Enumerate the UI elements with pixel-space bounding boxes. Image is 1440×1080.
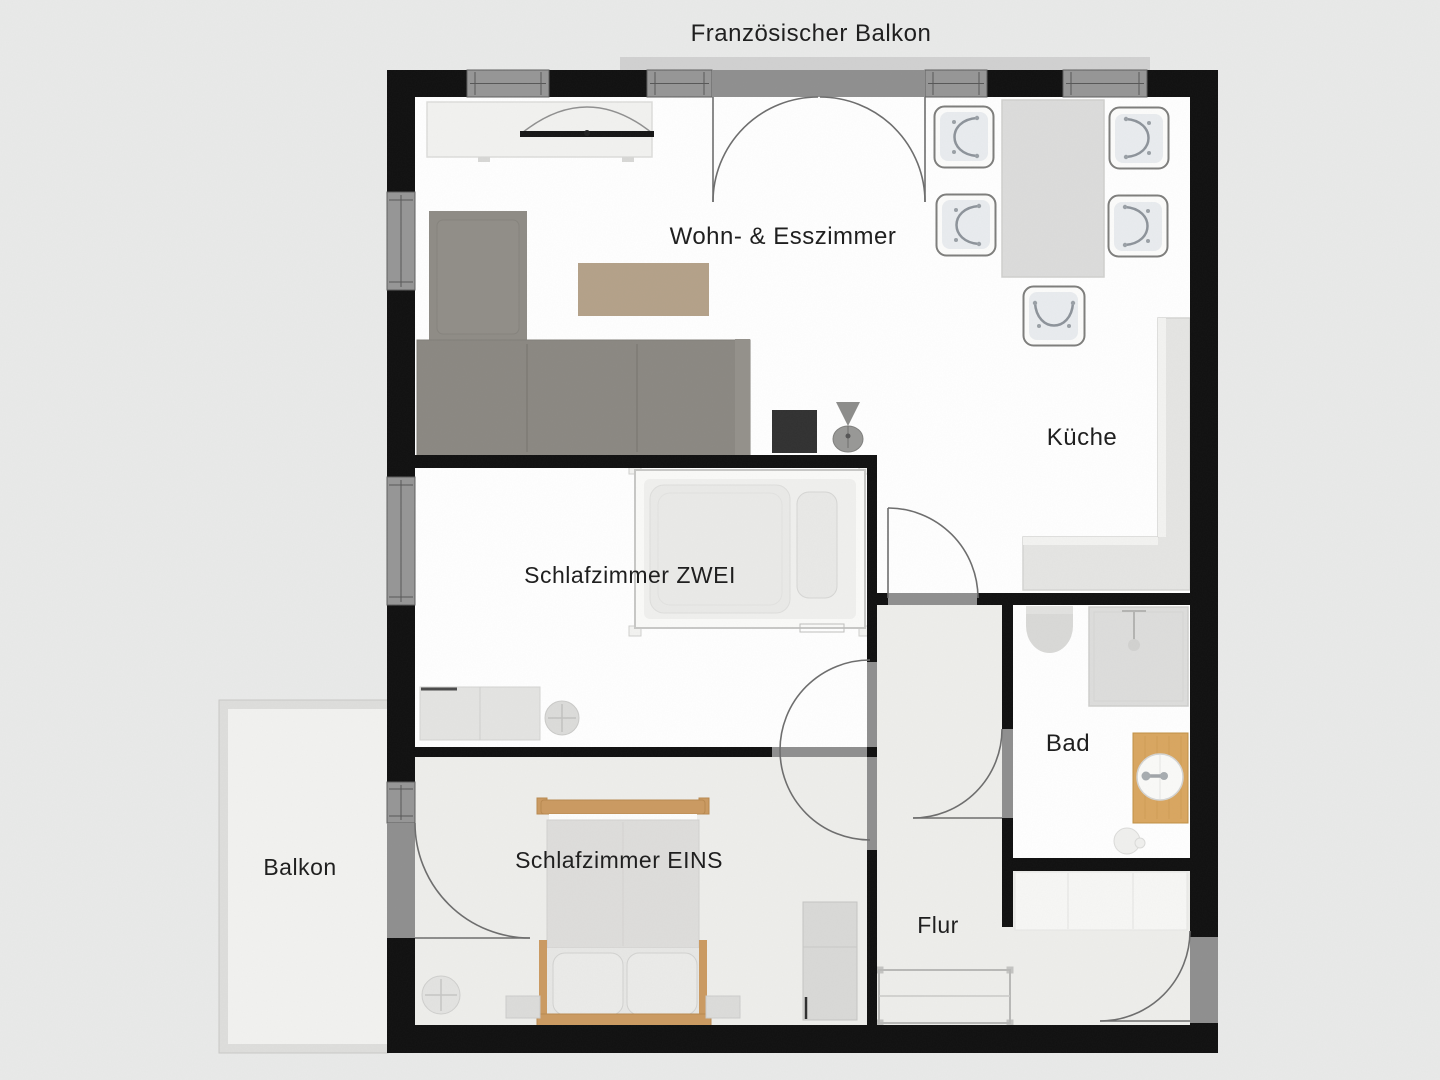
label-bathroom: Bad (1046, 730, 1090, 757)
label-french-balcony: Französischer Balkon (691, 20, 932, 47)
label-bedroom-one: Schlafzimmer EINS (515, 847, 723, 873)
floor-plan-page: Französischer Balkon Wohn- & Esszimmer K… (0, 0, 1440, 1080)
label-living-dining: Wohn- & Esszimmer (670, 223, 897, 250)
label-balcony: Balkon (263, 854, 336, 880)
label-kitchen: Küche (1047, 424, 1118, 451)
paper-grain (0, 0, 1440, 1080)
label-bedroom-two: Schlafzimmer ZWEI (524, 562, 736, 588)
floor-plan-canvas: Französischer Balkon Wohn- & Esszimmer K… (0, 0, 1440, 1080)
label-hallway: Flur (917, 912, 959, 938)
